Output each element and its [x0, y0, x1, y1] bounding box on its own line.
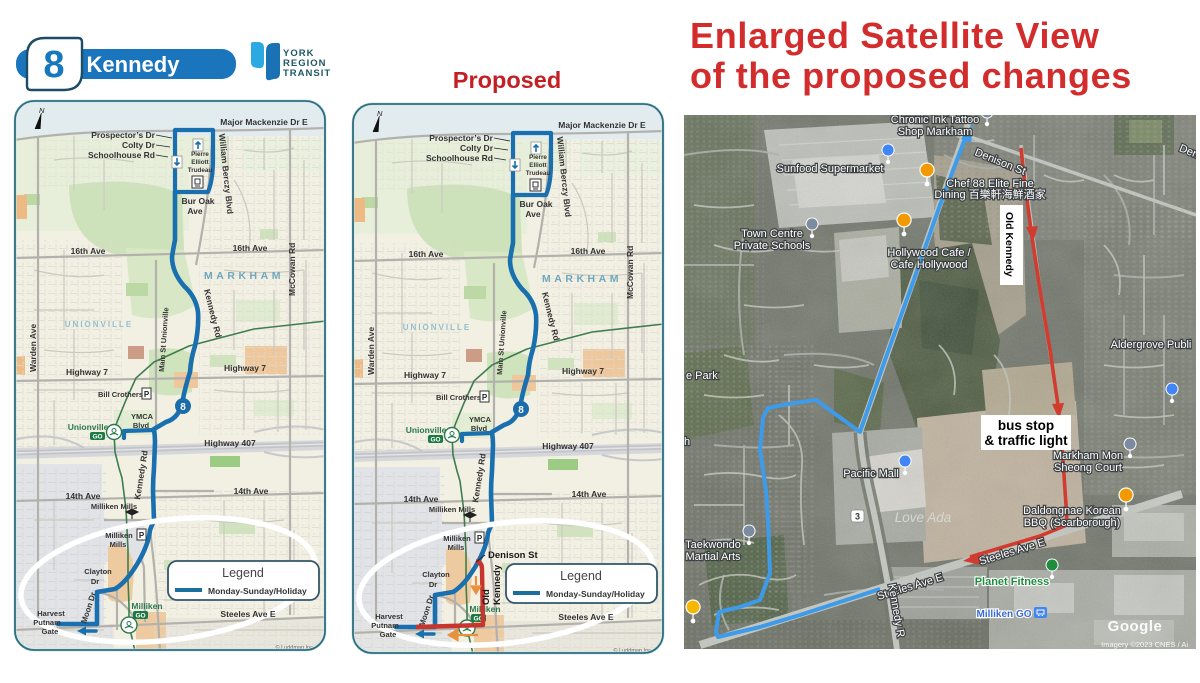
svg-text:Shop Markham: Shop Markham	[898, 126, 973, 138]
svg-text:e Park: e Park	[686, 370, 718, 382]
svg-text:bus stop: bus stop	[998, 418, 1054, 433]
svg-text:Taekwondo: Taekwondo	[685, 539, 741, 551]
svg-text:Proposed: Proposed	[453, 67, 561, 93]
svg-text:Planet Fitness: Planet Fitness	[975, 576, 1050, 588]
svg-text:Martial Arts: Martial Arts	[685, 551, 741, 563]
svg-text:8: 8	[43, 44, 64, 86]
svg-text:& traffic light: & traffic light	[984, 433, 1068, 448]
svg-text:Old: Old	[481, 589, 492, 605]
svg-text:Old Kennedy: Old Kennedy	[1003, 212, 1015, 277]
svg-text:Imagery ©2023 CNES / Ai: Imagery ©2023 CNES / Ai	[1101, 640, 1188, 649]
svg-text:Pacific Mall: Pacific Mall	[843, 468, 899, 480]
svg-text:Aldergrove Publi: Aldergrove Publi	[1111, 339, 1192, 351]
svg-text:Town Centre: Town Centre	[741, 228, 803, 240]
svg-text:Kennedy: Kennedy	[87, 52, 181, 77]
svg-text:Private Schools: Private Schools	[734, 240, 811, 252]
svg-text:Hollywood Cafe /: Hollywood Cafe /	[887, 247, 971, 259]
svg-text:Sunfood Supermarket: Sunfood Supermarket	[776, 163, 883, 175]
svg-text:Denison St: Denison St	[488, 550, 538, 561]
svg-text:Markham Mon: Markham Mon	[1053, 450, 1123, 462]
svg-text:Love Ada: Love Ada	[895, 510, 952, 525]
svg-text:3: 3	[855, 512, 860, 522]
svg-text:Dining 百樂軒海鮮酒家: Dining 百樂軒海鮮酒家	[934, 187, 1045, 201]
svg-text:TRANSIT: TRANSIT	[283, 68, 331, 79]
svg-text:Chronic Ink Tattoo: Chronic Ink Tattoo	[891, 114, 979, 126]
svg-text:Cafe Hollywood: Cafe Hollywood	[890, 259, 967, 271]
svg-text:Daldongnae Korean: Daldongnae Korean	[1023, 505, 1121, 517]
svg-text:Kennedy: Kennedy	[492, 564, 503, 605]
svg-text:h: h	[684, 436, 690, 448]
svg-text:Google: Google	[1108, 618, 1163, 635]
svg-text:Enlarged Satellite View: Enlarged Satellite View	[690, 15, 1100, 56]
svg-text:of the proposed changes: of the proposed changes	[690, 55, 1132, 96]
svg-text:Sheong Court: Sheong Court	[1054, 462, 1122, 474]
svg-text:Milliken GO: Milliken GO	[976, 609, 1031, 620]
svg-text:BBQ (Scarborough): BBQ (Scarborough)	[1024, 517, 1121, 529]
